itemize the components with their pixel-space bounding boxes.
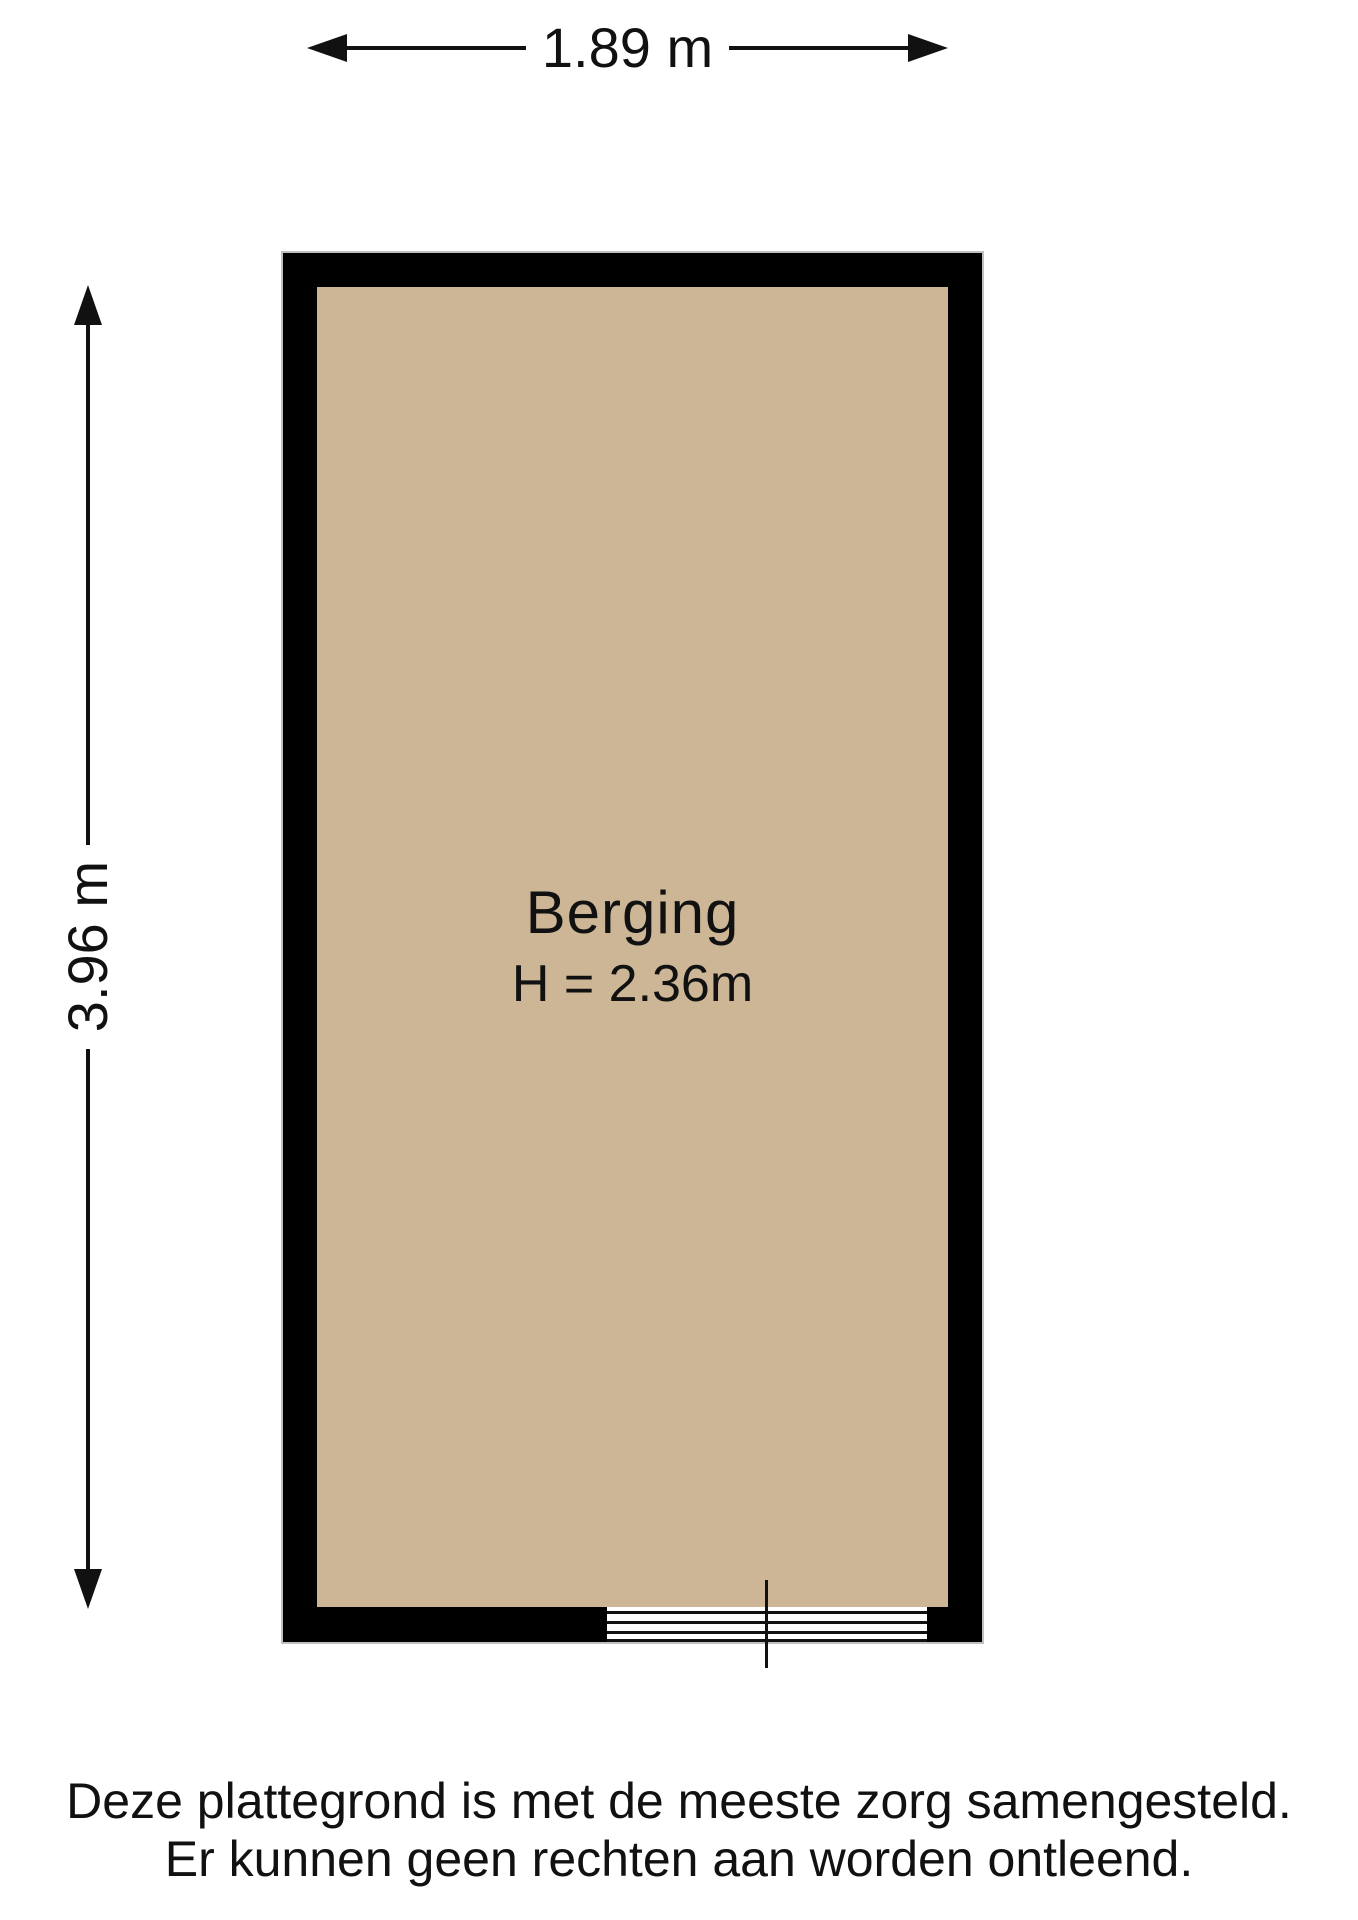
- dimension-line: [86, 325, 90, 845]
- arrow-down-icon: [74, 1569, 102, 1609]
- dimension-line: [729, 46, 908, 50]
- room-floor: Berging H = 2.36m: [317, 287, 948, 1607]
- opening-center-marker: [765, 1580, 768, 1668]
- ceiling-height-label: H = 2.36m: [512, 956, 753, 1013]
- arrow-up-icon: [74, 285, 102, 325]
- disclaimer: Deze plattegrond is met de meeste zorg s…: [0, 1772, 1358, 1888]
- arrow-right-icon: [908, 34, 948, 62]
- disclaimer-line-1: Deze plattegrond is met de meeste zorg s…: [0, 1772, 1358, 1830]
- room-name-label: Berging: [526, 880, 740, 946]
- dimension-line: [347, 46, 526, 50]
- disclaimer-line-2: Er kunnen geen rechten aan worden ontlee…: [0, 1830, 1358, 1888]
- width-dimension-label: 1.89 m: [526, 20, 729, 76]
- arrow-left-icon: [307, 34, 347, 62]
- room-walls: Berging H = 2.36m: [283, 253, 982, 1642]
- height-dimension-label: 3.96 m: [60, 845, 116, 1048]
- dimension-line: [86, 1049, 90, 1569]
- width-dimension: 1.89 m: [307, 24, 948, 72]
- floorplan-page: 1.89 m 3.96 m Berging H = 2.36m Deze pla…: [0, 0, 1358, 1920]
- height-dimension: 3.96 m: [64, 285, 112, 1609]
